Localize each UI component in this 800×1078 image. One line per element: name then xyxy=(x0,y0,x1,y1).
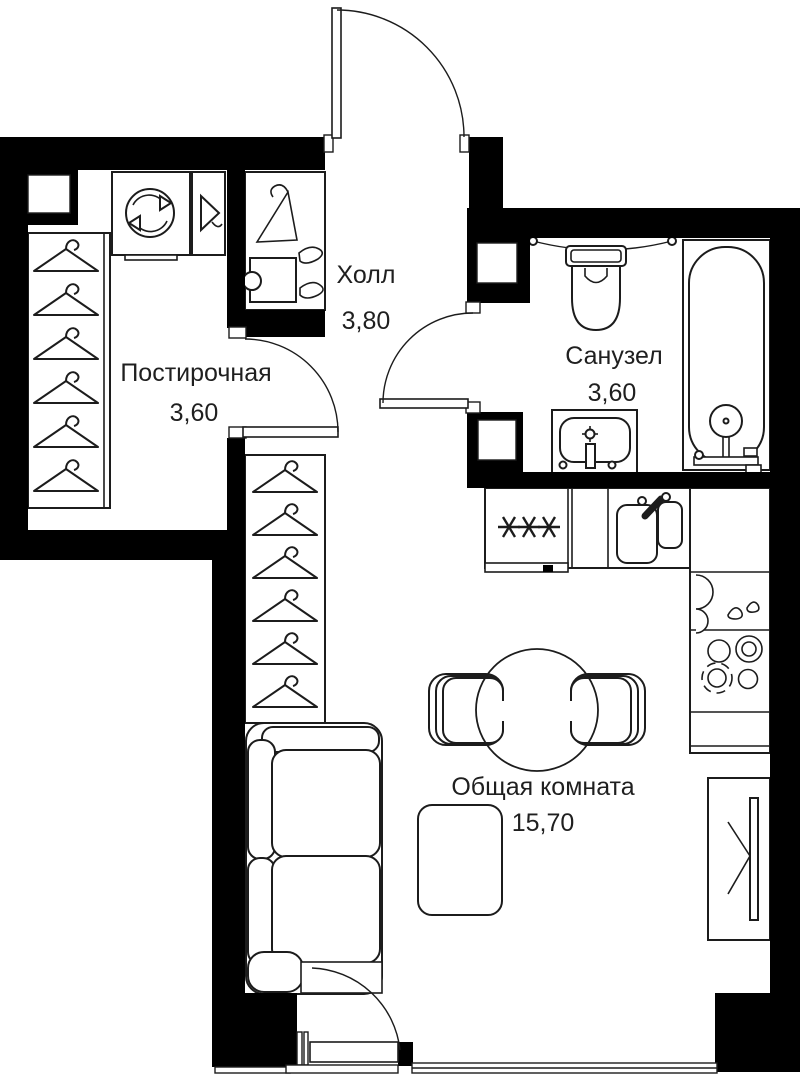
walls xyxy=(0,137,800,1072)
floor-plan: Постирочная 3,60 Холл 3,80 Санузел 3,60 … xyxy=(0,0,800,1078)
bathtub-icon xyxy=(683,240,770,474)
living-wardrobe xyxy=(245,455,325,723)
chair-right xyxy=(567,674,645,745)
door-swing-arc xyxy=(383,313,473,403)
room-name: Постирочная xyxy=(120,359,271,387)
room-area: 3,80 xyxy=(342,307,391,335)
bathroom-door xyxy=(380,302,480,413)
door-leaf xyxy=(310,1042,398,1062)
sofa-icon xyxy=(246,723,382,994)
room-name: Холл xyxy=(337,261,396,289)
room-area: 3,60 xyxy=(170,399,219,427)
wall-niche xyxy=(28,175,70,213)
room-area: 3,60 xyxy=(588,379,637,407)
door-leaf xyxy=(243,427,338,437)
floor-plan-svg: Постирочная 3,60 Холл 3,80 Санузел 3,60 … xyxy=(0,0,800,1078)
chair-left xyxy=(429,674,507,745)
wall-niche xyxy=(478,420,516,460)
entrance-door xyxy=(324,8,469,152)
hall-shoe-rack xyxy=(243,172,325,310)
door-swing-arc xyxy=(337,10,464,137)
bathroom-sink-icon xyxy=(552,410,637,475)
laundry-cabinet-icon xyxy=(192,172,225,255)
wall-niche xyxy=(477,243,517,283)
coffee-table-icon xyxy=(418,805,502,915)
window xyxy=(215,1063,717,1073)
door-leaf xyxy=(380,399,468,408)
room-label-laundry: Постирочная 3,60 xyxy=(120,359,271,427)
room-label-bathroom: Санузел 3,60 xyxy=(565,342,662,407)
room-name: Санузел xyxy=(565,342,662,370)
washing-machine-icon xyxy=(112,172,190,260)
room-name: Общая комната xyxy=(451,773,634,801)
room-area: 15,70 xyxy=(512,809,575,837)
room-label-hall: Холл 3,80 xyxy=(337,261,396,335)
toilet-icon xyxy=(566,246,626,330)
bath-faucet xyxy=(694,457,758,465)
door-leaf xyxy=(332,8,341,138)
laundry-wardrobe xyxy=(28,233,110,508)
sliding-wardrobe-icon xyxy=(708,778,770,940)
